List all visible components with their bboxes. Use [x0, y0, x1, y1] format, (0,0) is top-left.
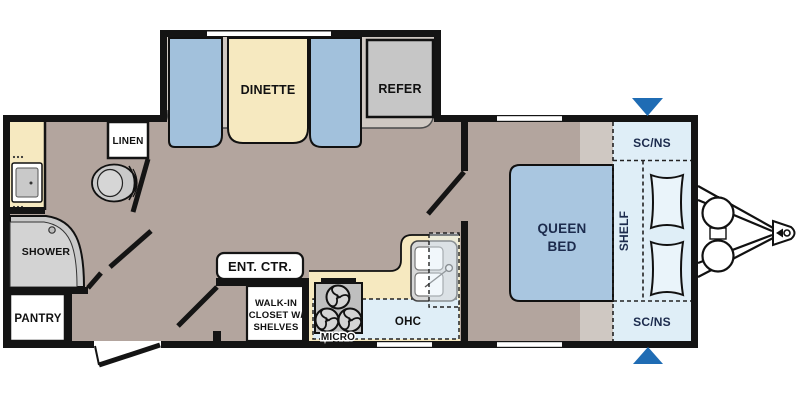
wall-ent-ctr [216, 278, 309, 286]
queen-bed-label-2: BED [547, 239, 576, 254]
bath-sink-drain [30, 182, 33, 185]
refrigerator-label: REFER [378, 82, 421, 96]
bed-platform-strip-top [580, 122, 613, 165]
entry-door-swing [95, 346, 99, 365]
entertainment-center: ENT. CTR. [217, 253, 303, 279]
dinette-bench-right [310, 38, 361, 147]
refrigerator [367, 40, 433, 117]
pantry-label: PANTRY [14, 313, 61, 325]
wall-closet-right [302, 286, 309, 341]
wall-right [691, 115, 698, 348]
sc-ns-bottom-label: SC/NS [633, 315, 671, 329]
shelf-label: SHELF [617, 211, 631, 251]
slideout-wall-right [434, 30, 441, 122]
wall-pantry-right [65, 294, 72, 348]
burner-icon [316, 309, 340, 332]
floorplan-canvas: DINETTE REFER LINEN SHOWER PANTRY [0, 0, 800, 400]
bed-platform-strip-bottom [580, 301, 613, 341]
microwave-label: MICRO [321, 332, 355, 343]
arrow-down-icon [632, 98, 663, 116]
stove [315, 278, 362, 333]
pillow-1 [651, 175, 683, 228]
walk-in-closet: WALK-IN CLOSET W/ SHELVES [247, 286, 305, 341]
wall-under-shower [3, 287, 88, 294]
ent-ctr-label: ENT. CTR. [228, 259, 292, 274]
sc-ns-top-label: SC/NS [633, 136, 671, 150]
arrow-up-icon [633, 347, 663, 364]
floorplan-svg: DINETTE REFER LINEN SHOWER PANTRY [0, 0, 800, 400]
pillow-2 [651, 242, 683, 295]
wall-bedroom-divider [461, 221, 468, 341]
window-bedroom-bottom [497, 342, 562, 347]
walk-in-closet-label-2: CLOSET W/ [249, 310, 304, 321]
wall-top-right [434, 115, 698, 122]
wall-bedroom-stub [461, 118, 468, 171]
dinette-label: DINETTE [241, 83, 296, 97]
propane-tank-2 [703, 241, 734, 272]
shower-drain [49, 227, 55, 233]
walk-in-closet-label-3: SHELVES [253, 322, 298, 333]
window-kitchen-bottom [377, 342, 432, 347]
walk-in-closet-label-1: WALK-IN [255, 298, 297, 309]
burner-icon [339, 309, 363, 332]
hitch-ball-socket [784, 230, 790, 236]
slideout-wall-left [160, 30, 167, 122]
pantry: PANTRY [10, 294, 65, 341]
bath-sink-basin [16, 168, 38, 197]
overhead-cabinet-label: OHC [395, 316, 421, 328]
toilet-bowl [98, 170, 123, 197]
dinette-bench-left [169, 38, 222, 147]
linen-label: LINEN [113, 136, 144, 147]
hitch-assembly [698, 186, 795, 277]
stove-vent [321, 278, 356, 284]
overhead-cabinet-sink [429, 233, 459, 307]
burner-icon [327, 286, 351, 309]
propane-tank-1 [703, 198, 734, 229]
wall-under-bath-counter [3, 207, 45, 214]
window-bedroom-top [497, 116, 562, 121]
shower-label: SHOWER [22, 246, 71, 258]
tank-bracket [710, 228, 726, 239]
queen-bed-label-1: QUEEN [537, 221, 586, 236]
window-dinette [207, 32, 331, 37]
wall-stub-entry [213, 331, 221, 341]
